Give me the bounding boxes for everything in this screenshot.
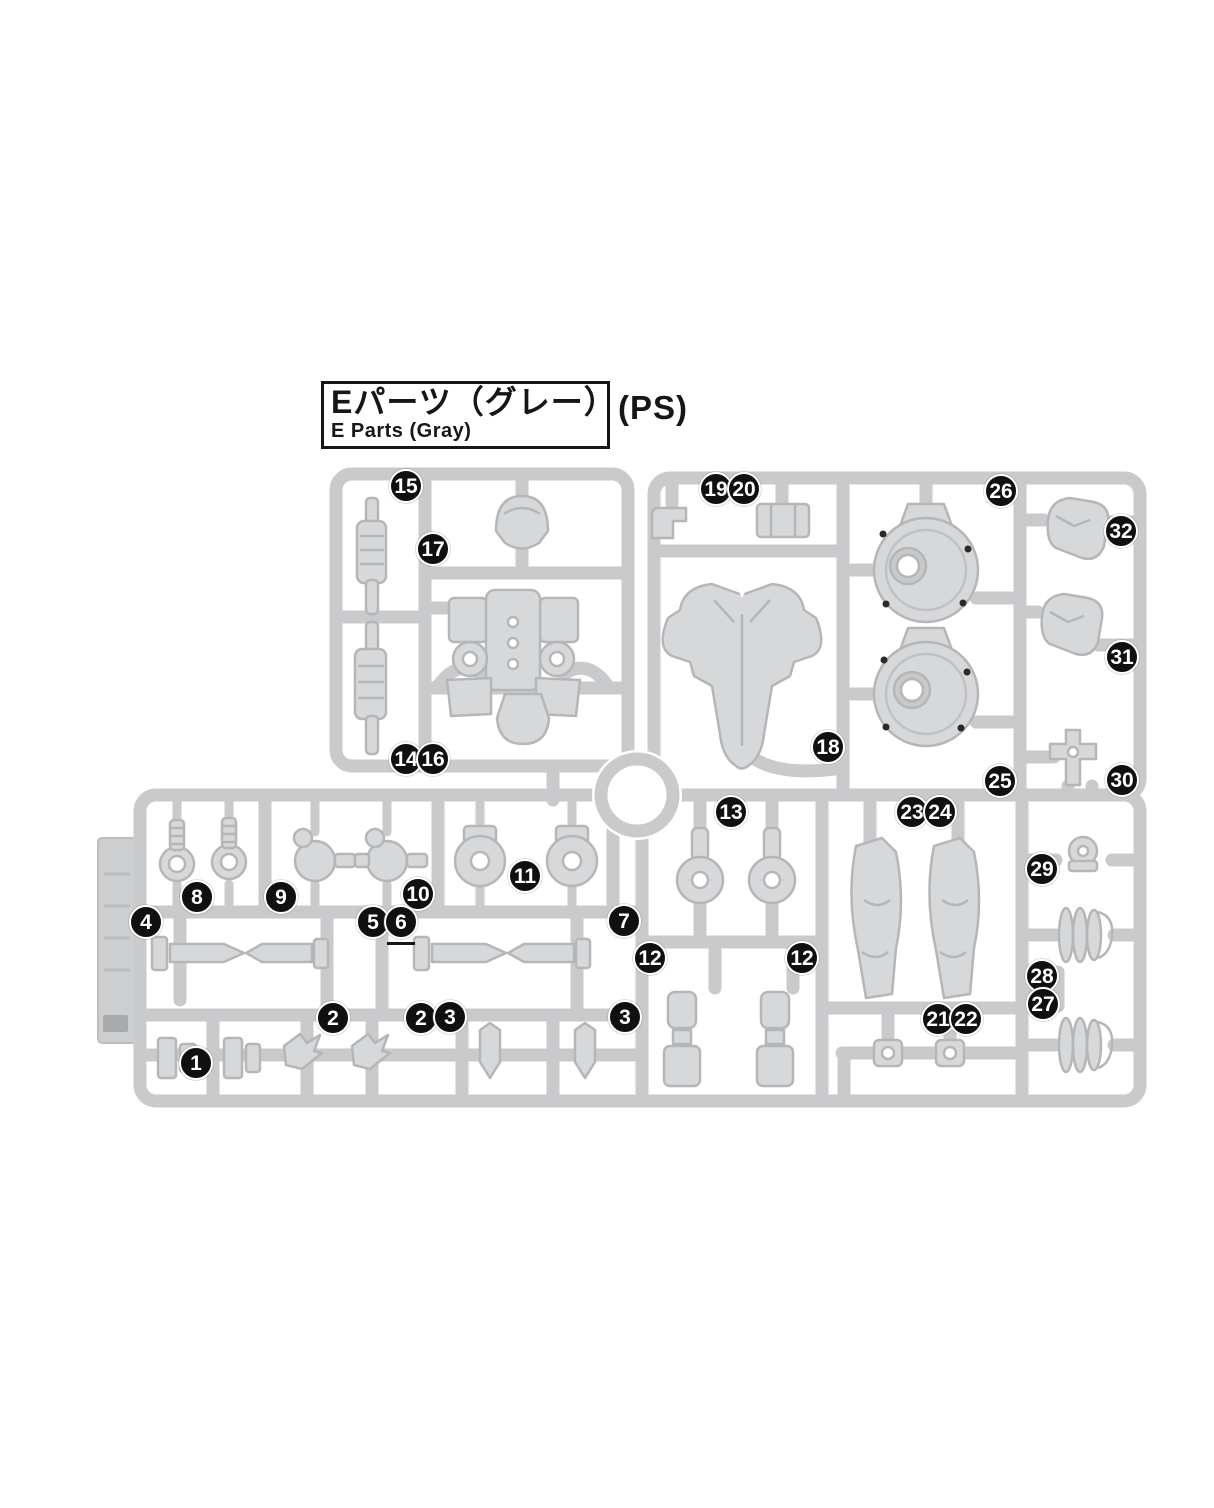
runner-tab xyxy=(98,838,136,1043)
runner-center-ring xyxy=(592,750,682,840)
sprue-diagram xyxy=(0,0,1214,1508)
instruction-page: Eパーツ（グレー） E Parts (Gray) (PS) xyxy=(0,0,1214,1508)
